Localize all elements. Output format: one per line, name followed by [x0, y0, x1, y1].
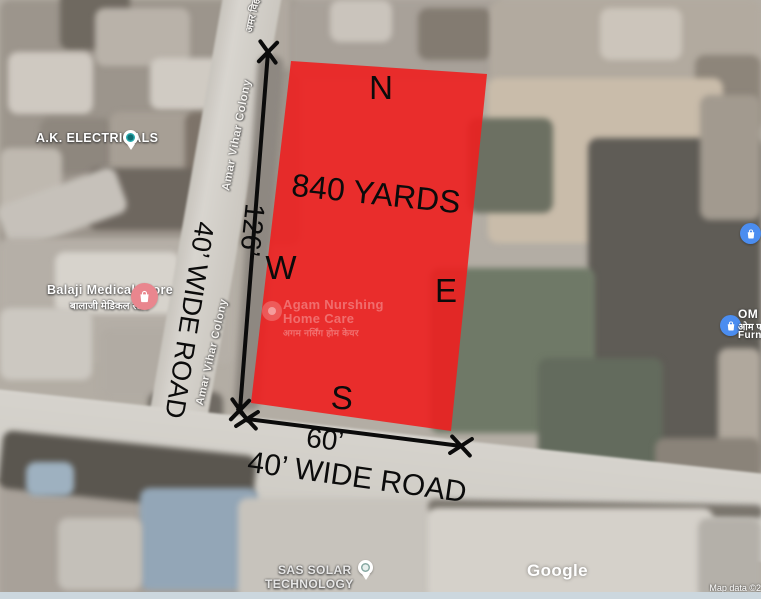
bottom-bar: [0, 592, 761, 599]
place-label-agam-line2: Home Care: [283, 311, 354, 326]
compass-south-label: S: [330, 378, 355, 417]
south-dimension-label: 60’: [305, 422, 346, 458]
compass-west-label: W: [265, 249, 296, 287]
place-label-agam-line1: Agam Nurshing: [283, 297, 384, 312]
map-canvas[interactable]: अमर विहा Amar Vihar Colony Amar Vihar Co…: [0, 0, 761, 599]
faded-place-pin-icon: [262, 301, 282, 321]
compass-north-label: N: [369, 69, 393, 107]
plot-polygon: [251, 61, 487, 431]
compass-east-label: E: [435, 272, 457, 310]
west-dimension-label: 126’: [233, 202, 270, 258]
place-label-agam-hindi: अगम नर्सिंग होम केयर: [283, 326, 359, 339]
google-logo[interactable]: Google: [527, 561, 588, 581]
